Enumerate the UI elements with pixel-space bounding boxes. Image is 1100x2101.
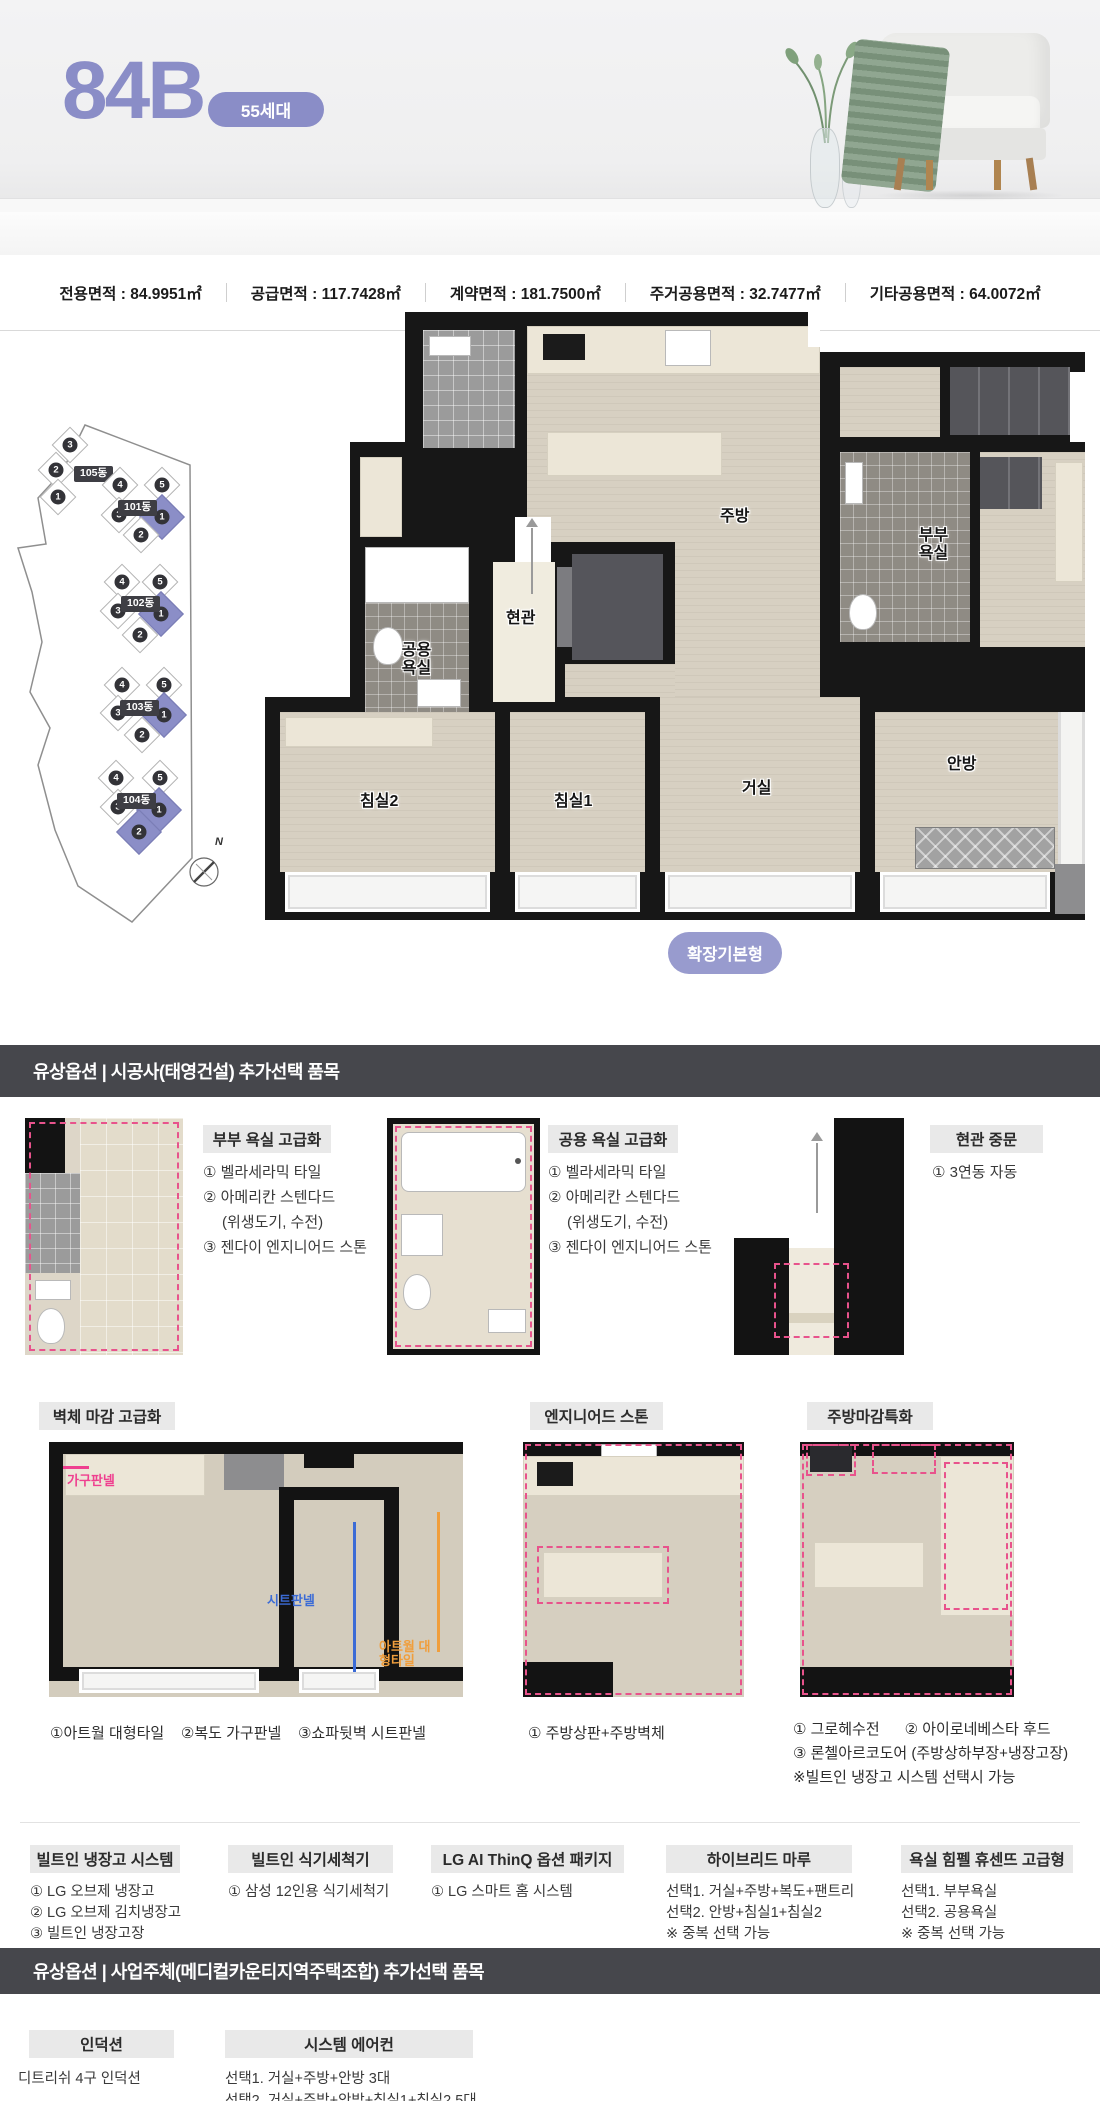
interior-wall: [279, 1487, 399, 1500]
caption-engineered-stone: ① 주방상판+주방벽체: [528, 1722, 665, 1746]
option-title-system-aircon: 시스템 에어컨: [225, 2030, 473, 2058]
entry-arrow-head: [811, 1132, 823, 1141]
ac-unit-area: [1055, 864, 1085, 914]
option-items-thinq-package: ① LG 스마트 홈 시스템: [431, 1882, 573, 1903]
section-title: 유상옵션 | 사업주체(메디컬카운티지역주택조합) 추가선택 품목: [0, 1958, 484, 1984]
area-item: 계약면적181.7500㎡: [450, 282, 601, 304]
area-label: 전용면적: [59, 286, 130, 303]
area-item: 전용면적84.9951㎡: [59, 282, 201, 304]
area-value: 117.7428㎡: [322, 286, 401, 303]
room-label-entrance: 현관: [506, 604, 535, 628]
room-label-kitchen: 주방: [720, 502, 749, 526]
option-title-entrance-door: 현관 중문: [930, 1125, 1043, 1153]
brochure-page: 84B 55세대 전용면적84.9951㎡ 공급면적117.7428㎡ 계약면적…: [0, 0, 1100, 2101]
area-item: 공급면적117.7428㎡: [251, 282, 401, 304]
site-unit-marker: 2: [128, 522, 154, 548]
thumb-common-bath-plan: [387, 1118, 540, 1355]
divider: [845, 283, 846, 302]
entry-floor: [493, 562, 555, 702]
option-item: (위생도기, 수전): [548, 1210, 712, 1235]
site-unit-marker: 4: [109, 569, 135, 595]
building-label: 103동: [120, 700, 159, 716]
option-item: 선택1. 거실+주방+복도+팬트리: [666, 1882, 854, 1903]
image-kitchen-finish-plan: [800, 1442, 1014, 1697]
balcony-window: [285, 872, 490, 912]
caption-line: ※빌트인 냉장고 시스템 선택시 가능: [793, 1766, 1068, 1790]
entry-arrow-head: [526, 518, 538, 527]
window-bench: [1055, 462, 1083, 582]
expand-type-badge: 확장기본형: [668, 932, 782, 974]
bedroom2-desk: [285, 717, 433, 747]
dressing-cabinet: [980, 457, 1042, 509]
section-header-constructor-options: 유상옵션 | 시공사(태영건설) 추가선택 품목: [0, 1045, 1100, 1097]
glass-vase: [810, 128, 840, 208]
artwall-tile-line: [437, 1512, 440, 1652]
cabinet: [224, 1454, 284, 1490]
master-closet: [915, 827, 1055, 869]
divider: [425, 283, 426, 302]
option-title-wall-finish: 벽체 마감 고급화: [39, 1402, 175, 1430]
balcony-window: [515, 872, 640, 912]
area-label: 공급면적: [251, 286, 322, 303]
kitchen-sink: [665, 330, 711, 366]
area-label: 계약면적: [450, 286, 521, 303]
label-furniture-panel: 가구판넬: [67, 1474, 115, 1488]
compass-north-label: N: [215, 836, 223, 848]
chair-shadow: [875, 190, 1065, 201]
corridor-floor: [565, 664, 677, 697]
option-title-builtin-fridge: 빌트인 냉장고 시스템: [30, 1845, 180, 1873]
option-title-master-bath: 부부 욕실 고급화: [203, 1125, 331, 1153]
option-items-induction: 디트리쉬 4구 인덕션: [18, 2068, 141, 2090]
window-slit: [808, 312, 820, 347]
area-item: 기타공용면적64.0072㎡: [870, 282, 1041, 304]
closet-cabinets: [950, 367, 1070, 435]
area-value: 64.0072㎡: [969, 286, 1041, 303]
option-item: ① LG 스마트 홈 시스템: [431, 1882, 573, 1903]
option-items-bath-ventilator: 선택1. 부부욕실 선택2. 공용욕실 ※ 중복 선택 가능: [901, 1882, 1005, 1945]
room-label-common-bath: 공용욕실: [398, 642, 435, 678]
washer-appliance: [429, 336, 471, 356]
area-label: 주거공용면적: [650, 286, 749, 303]
wall-block: [304, 1442, 354, 1468]
highlight-dashed-box: [802, 1444, 1012, 1695]
option-items-dishwasher: ① 삼성 12인용 식기세척기: [228, 1882, 389, 1903]
option-item: 디트리쉬 4구 인덕션: [18, 2068, 141, 2090]
option-item: ③ 빌트인 냉장고장: [30, 1924, 181, 1945]
cooktop: [543, 334, 585, 360]
site-unit-marker: 4: [107, 472, 133, 498]
option-title-common-bath: 공용 욕실 고급화: [548, 1125, 678, 1153]
section-title: 유상옵션 | 시공사(태영건설) 추가선택 품목: [0, 1058, 340, 1084]
option-item: ② LG 오브제 김치냉장고: [30, 1903, 181, 1924]
option-item: ② 아메리칸 스텐다드: [548, 1185, 712, 1210]
open-living-floor: [675, 542, 820, 697]
caption-line: ① 그로헤수전 ② 아이로네베스타 후드: [793, 1718, 1068, 1742]
balcony-window: [880, 872, 1050, 912]
option-title-bath-ventilator: 욕실 힘펠 휴센뜨 고급형: [901, 1845, 1073, 1873]
site-unit-marker: 4: [109, 672, 135, 698]
building-label: 104동: [117, 793, 156, 809]
site-unit-marker: 1: [45, 484, 71, 510]
chair-leg: [994, 160, 1001, 190]
chair-leg: [1026, 158, 1037, 191]
site-unit-marker: 2: [129, 722, 155, 748]
option-items-system-aircon: 선택1. 거실+주방+안방 3대 선택2. 거실+주방+안방+침실1+침실2 5…: [225, 2068, 477, 2101]
furniture-panel-mark: [63, 1466, 89, 1469]
entry-direction-arrow: [531, 528, 533, 594]
divider: [625, 283, 626, 302]
image-engineered-stone-plan: [523, 1442, 744, 1697]
option-title-dishwasher: 빌트인 식기세척기: [228, 1845, 393, 1873]
building-label: 102동: [121, 596, 160, 612]
site-unit-marker: 4: [103, 765, 129, 791]
section-header-developer-options: 유상옵션 | 사업주체(메디컬카운티지역주택조합) 추가선택 품목: [0, 1948, 1100, 1994]
option-title-thinq-package: LG AI ThinQ 옵션 패키지: [431, 1845, 624, 1873]
compass-icon: [182, 848, 226, 892]
room-label-bedroom2: 침실2: [360, 787, 398, 811]
balcony-window: [299, 1669, 379, 1693]
pantry: [572, 554, 663, 660]
option-item: ② 아메리칸 스텐다드: [203, 1185, 367, 1210]
site-plan: 3 2 1 105동 4 5 3 1 2 101동 4 5 3 1 2 102동…: [10, 330, 240, 930]
site-unit-marker: 3: [57, 432, 83, 458]
option-title-kitchen-finish: 주방마감특화: [807, 1402, 933, 1430]
option-item: (위생도기, 수전): [203, 1210, 367, 1235]
option-item: ③ 젠다이 엔지니어드 스톤: [203, 1235, 367, 1260]
option-item: ※ 중복 선택 가능: [666, 1924, 854, 1945]
room-label-master-bath: 부부욕실: [915, 527, 952, 563]
option-items-builtin-fridge: ① LG 오브제 냉장고 ② LG 오브제 김치냉장고 ③ 빌트인 냉장고장: [30, 1882, 181, 1945]
divider: [20, 1822, 1080, 1823]
sheet-panel-line: [353, 1522, 356, 1672]
kitchen-island: [547, 432, 722, 476]
room-label-bedroom1: 침실1: [554, 787, 592, 811]
building-label: 101동: [118, 500, 157, 516]
common-bath-tub: [365, 547, 469, 603]
option-item: ③ 젠다이 엔지니어드 스톤: [548, 1235, 712, 1260]
floor-plan: 주방 현관 공용욕실 부부욕실 침실2 침실1 거실 안방: [265, 312, 1085, 920]
option-item: 선택1. 부부욕실: [901, 1882, 1005, 1903]
label-sheet-panel: 시트판넬: [267, 1594, 315, 1608]
option-item: 선택2. 거실+주방+안방+침실1+침실2 5대: [225, 2090, 477, 2101]
side-window: [1058, 712, 1085, 870]
master-bath-toilet: [849, 594, 877, 630]
caption-kitchen-finish: ① 그로헤수전 ② 아이로네베스타 후드 ③ 론첼아르코도어 (주방상하부장+냉…: [793, 1718, 1068, 1790]
option-item: 선택1. 거실+주방+안방 3대: [225, 2068, 477, 2090]
interior-wall: [279, 1487, 294, 1667]
option-title-engineered-stone: 엔지니어드 스톤: [530, 1402, 663, 1430]
household-count-badge: 55세대: [208, 92, 324, 127]
label-artwall-tile: 아트월 대형타일: [379, 1640, 431, 1668]
area-label: 기타공용면적: [870, 286, 969, 303]
area-value: 181.7500㎡: [521, 286, 601, 303]
divider: [226, 283, 227, 302]
option-item: ① 3연동 자동: [932, 1160, 1017, 1185]
option-items-common-bath: ① 벨라세라믹 타일 ② 아메리칸 스텐다드 (위생도기, 수전) ③ 젠다이 …: [548, 1160, 712, 1260]
option-item: ※ 중복 선택 가능: [901, 1924, 1005, 1945]
option-item: ① 삼성 12인용 식기세척기: [228, 1882, 389, 1903]
option-item: 선택2. 공용욕실: [901, 1903, 1005, 1924]
site-unit-marker: 2: [127, 622, 153, 648]
room-label-master: 안방: [947, 750, 976, 774]
site-unit-marker-highlighted: 2: [126, 819, 152, 845]
common-bath-sink: [417, 679, 461, 707]
bath-shelf: [360, 457, 402, 537]
room-label-living: 거실: [742, 774, 771, 798]
highlight-dashed-box: [395, 1126, 532, 1347]
option-item: 선택2. 안방+침실1+침실2: [666, 1903, 854, 1924]
highlight-dashed-box: [774, 1263, 849, 1338]
image-wall-finish-plan: 가구판넬 시트판넬 아트월 대형타일: [49, 1442, 463, 1697]
caption-line: ③ 론첼아르코도어 (주방상하부장+냉장고장): [793, 1742, 1068, 1766]
balcony-window: [79, 1669, 259, 1693]
chair-leg: [926, 160, 933, 190]
area-value: 32.7477㎡: [749, 286, 821, 303]
thumb-master-bath-plan: [25, 1118, 183, 1355]
option-title-induction: 인덕션: [29, 2030, 174, 2058]
option-items-hybrid-floor: 선택1. 거실+주방+복도+팬트리 선택2. 안방+침실1+침실2 ※ 중복 선…: [666, 1882, 854, 1945]
option-item: ① 벨라세라믹 타일: [548, 1160, 712, 1185]
option-items-master-bath: ① 벨라세라믹 타일 ② 아메리칸 스텐다드 (위생도기, 수전) ③ 젠다이 …: [203, 1160, 367, 1260]
vestibule-floor: [840, 367, 940, 437]
shoe-cabinet: [557, 567, 573, 647]
option-item: ① 벨라세라믹 타일: [203, 1160, 367, 1185]
master-bath-sink: [845, 462, 863, 504]
window-slit: [1070, 372, 1085, 442]
wall-block: [49, 1442, 63, 1672]
option-items-entrance-door: ① 3연동 자동: [932, 1160, 1017, 1185]
option-title-hybrid-floor: 하이브리드 마루: [666, 1845, 852, 1873]
hero-photo: [780, 8, 1100, 248]
highlight-dashed-box: [29, 1122, 179, 1351]
wall-block: [49, 1442, 463, 1454]
thumb-entrance-door-plan: [734, 1118, 904, 1355]
unit-type-title: 84B: [62, 50, 203, 132]
option-item: ① LG 오브제 냉장고: [30, 1882, 181, 1903]
caption-wall-finish: ①아트월 대형타일 ②복도 가구판넬 ③쇼파뒷벽 시트판넬: [50, 1722, 426, 1746]
area-item: 주거공용면적32.7477㎡: [650, 282, 821, 304]
highlight-dashed-box: [525, 1444, 742, 1695]
entry-direction-arrow: [816, 1143, 818, 1213]
area-value: 84.9951㎡: [130, 286, 202, 303]
balcony-window: [665, 872, 855, 912]
